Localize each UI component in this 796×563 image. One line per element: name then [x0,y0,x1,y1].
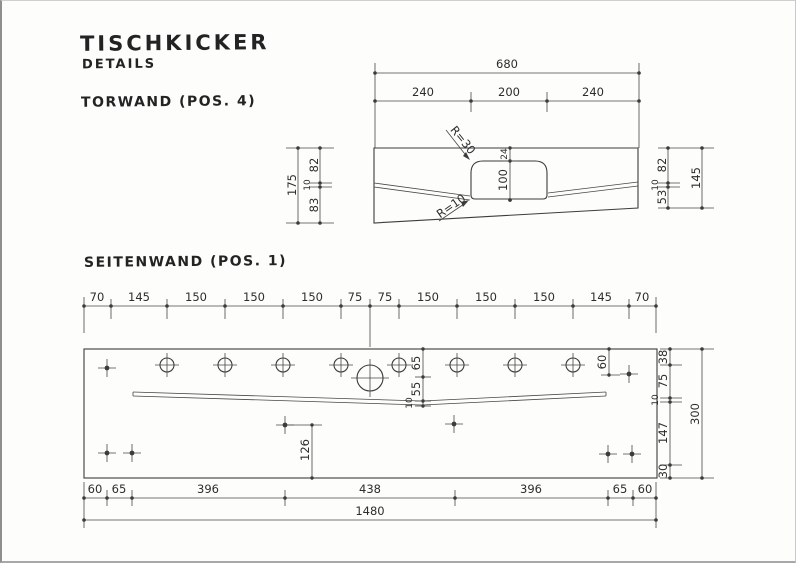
dim-width-seg: 200 [498,85,520,99]
dim-bottom-seg: 60 [638,482,653,496]
dim-top-seg: 150 [533,290,555,304]
dim-right-total: 300 [688,403,702,425]
seitenwand-groove [133,392,606,405]
dim-right-seg: 30 [656,464,670,479]
seitenwand-top-dim-ticks [82,304,658,308]
dim-right-seg: 10 [651,394,661,406]
dim-opening-height: 100 [496,169,510,191]
dim-hole-depth-right: 60 [595,355,609,370]
dim-top-seg: 145 [128,290,150,304]
dim-right-seg: 10 [651,179,661,191]
seitenwand-center-hole [351,359,389,397]
dim-top-seg: 70 [90,290,105,304]
dim-right-seg: 53 [655,190,669,205]
dim-bottom-seg: 65 [112,482,127,496]
dim-top-seg: 70 [635,290,650,304]
dim-right-seg: 82 [655,158,669,173]
torwand-top-dim-lines [375,63,639,148]
dim-top-seg: 75 [348,290,363,304]
dim-right-seg: 147 [656,422,670,444]
dim-width-seg: 240 [582,85,604,99]
dim-top-seg: 145 [590,290,612,304]
dim-top-seg: 150 [185,290,207,304]
dim-total-length: 1480 [355,504,384,518]
dim-right-seg: 75 [656,374,670,389]
dim-left-seg: 83 [307,198,321,213]
seitenwand-right-dim-lines [660,349,714,478]
dim-width-seg: 240 [412,85,434,99]
dim-bottom-seg: 438 [359,482,381,496]
dim-left-total: 175 [285,174,299,196]
dim-right-total: 145 [689,167,703,189]
technical-drawing: 680 240 200 240 175 82 10 83 [2,1,796,563]
dim-bottom-seg: 396 [197,482,219,496]
dim-left-seg: 82 [307,158,321,173]
dim-center-seg: 55 [409,382,423,397]
dim-top-seg: 150 [301,290,323,304]
dim-center-seg: 65 [409,356,423,371]
seitenwand-drill-points [98,359,641,463]
seitenwand-panel [84,349,657,478]
dim-top-seg: 150 [243,290,265,304]
dim-top-seg: 150 [475,290,497,304]
dim-total-width: 680 [496,57,518,71]
dim-center-seg: 10 [405,397,415,409]
dim-right-seg: 38 [656,350,670,365]
seitenwand-drawing: 70 145 150 150 150 75 75 150 150 150 145… [82,290,714,528]
torwand-drawing: 680 240 200 240 175 82 10 83 [285,57,714,225]
dim-bottom-seg: 65 [613,482,628,496]
dim-top-seg: 75 [378,290,393,304]
dim-top-seg: 150 [417,290,439,304]
dim-bottom-seg: 396 [520,482,542,496]
drawing-sheet: TISCHKICKER DETAILS TORWAND (POS. 4) SEI… [0,0,796,563]
dim-bottom-seg: 60 [88,482,103,496]
dim-opening-top-offset: 24 [500,148,510,160]
dim-hole-height-bottom: 126 [298,439,312,461]
dim-left-seg: 10 [303,179,313,191]
